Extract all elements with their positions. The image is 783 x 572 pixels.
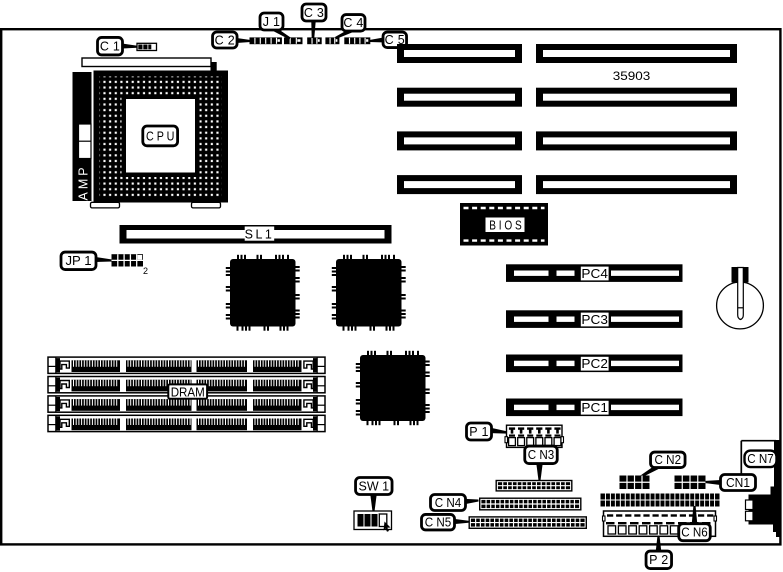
svg-text:CN1: CN1 (726, 476, 750, 490)
svg-text:JP 1: JP 1 (66, 254, 92, 268)
svg-text:C N4: C N4 (435, 496, 462, 510)
svg-text:C 3: C 3 (304, 6, 324, 20)
svg-text:C N2: C N2 (655, 453, 682, 467)
svg-text:C 2: C 2 (215, 33, 235, 47)
svg-text:C N7: C N7 (747, 452, 774, 466)
svg-text:P 2: P 2 (649, 553, 668, 567)
svg-text:J 1: J 1 (263, 15, 281, 29)
svg-text:C 4: C 4 (343, 16, 363, 30)
svg-text:AMP: AMP (77, 164, 91, 200)
svg-text:C P U: C P U (146, 130, 175, 144)
svg-text:B I O S: B I O S (489, 218, 522, 233)
svg-text:C 1: C 1 (100, 40, 120, 54)
svg-text:PC3: PC3 (581, 312, 608, 327)
svg-text:2: 2 (143, 266, 148, 276)
svg-text:C N5: C N5 (425, 516, 452, 530)
svg-text:PC4: PC4 (581, 266, 608, 281)
svg-text:PC1: PC1 (581, 400, 608, 415)
svg-text:C N6: C N6 (681, 526, 708, 540)
svg-text:PC2: PC2 (581, 356, 608, 371)
svg-text:C N3: C N3 (528, 448, 555, 462)
svg-text:35903: 35903 (613, 69, 651, 83)
svg-text:SL1: SL1 (245, 227, 275, 241)
svg-text:P 1: P 1 (469, 425, 488, 439)
svg-text:DRAM: DRAM (171, 385, 205, 400)
svg-text:SW 1: SW 1 (359, 479, 390, 493)
